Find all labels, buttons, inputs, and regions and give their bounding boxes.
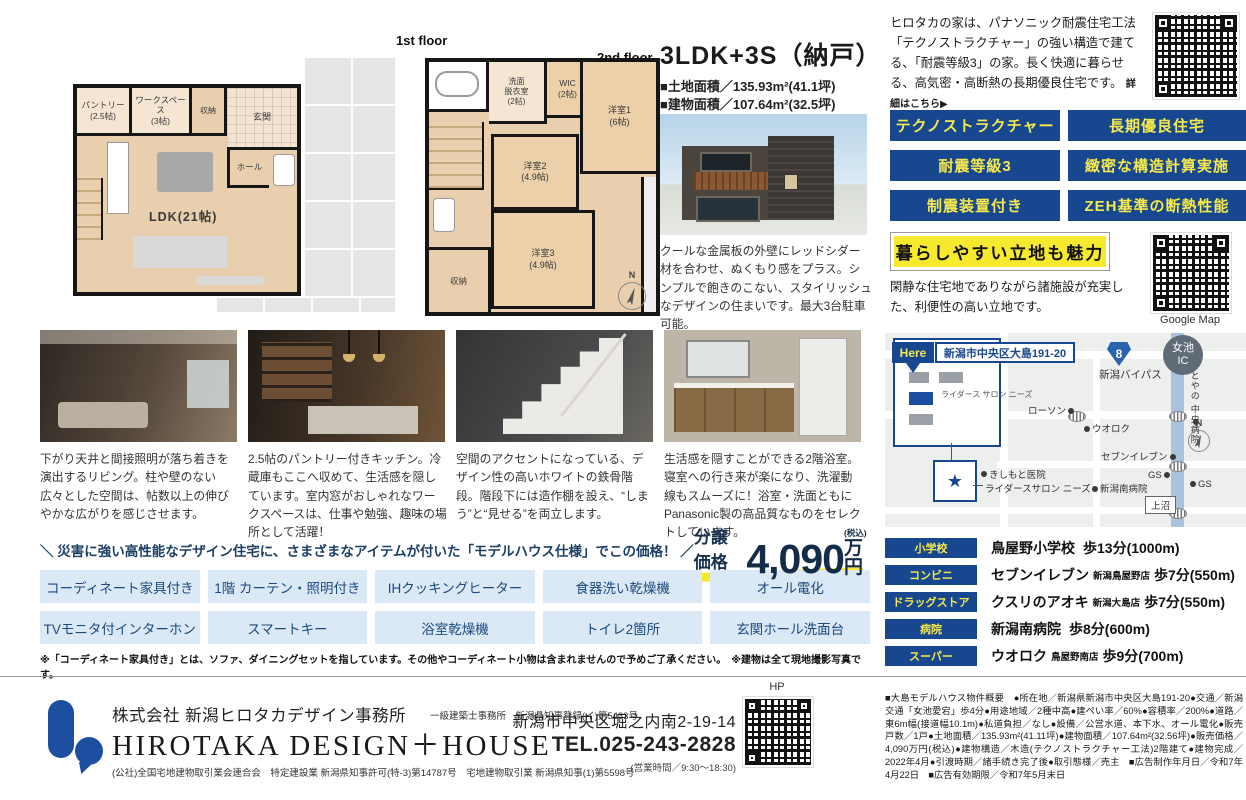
- item-furniture: コーディネート家具付き: [40, 570, 200, 603]
- seven-eleven-label: セブンイレブン: [1101, 449, 1178, 463]
- item-hall-vanity: 玄関ホール洗面台: [710, 611, 870, 644]
- floorplan-1f: パントリー (2.5帖) ワークスペース (3帖) 収納 玄関 ホール LDK(…: [65, 40, 395, 312]
- company-logo: [48, 700, 110, 778]
- clinic-label: きしもと医院: [989, 467, 1046, 481]
- dining-table: [157, 152, 213, 192]
- photo-staircase: [456, 330, 653, 442]
- room-ldk-label: LDK(21帖): [149, 206, 217, 225]
- bathtub: [435, 71, 479, 97]
- facility-walk: 歩7分(550m): [1144, 592, 1225, 612]
- item-ih-heater: IHクッキングヒーター: [375, 570, 535, 603]
- item-two-toilets: トイレ2箇所: [543, 611, 703, 644]
- room-bedroom1: 洋室1 (6帖): [580, 62, 656, 174]
- flyer-page: パントリー (2.5帖) ワークスペース (3帖) 収納 玄関 ホール LDK(…: [0, 0, 1246, 800]
- property-overview: ■大島モデルハウス物件概要 ●所在地／新潟県新潟市中央区大島191-20●交通／…: [885, 692, 1243, 782]
- photo-bathroom-vanity: [664, 330, 861, 442]
- here-chip: Here: [892, 342, 934, 363]
- inset-building: [939, 372, 963, 383]
- site-lot-grid: [303, 56, 395, 312]
- bypass-label: 新潟バイパス: [1099, 367, 1162, 382]
- room-pantry: パントリー (2.5帖): [77, 88, 132, 136]
- gs-label-1: GS: [1148, 470, 1172, 481]
- compass-icon: N: [618, 282, 646, 310]
- kaminuma-label: 上沼: [1145, 496, 1176, 514]
- facility-chip: 病院: [885, 619, 977, 639]
- room-bedroom2: 洋室2 (4.9帖): [491, 134, 579, 210]
- access-map: 8 新潟バイパス 女池 IC とやの 中央病院 ライダース サロン ニーズ He…: [885, 333, 1246, 527]
- facility-sub: 新潟鳥屋野店: [1093, 568, 1150, 582]
- contact-block: 新潟市中央区堀之内南2-19-14 TEL.025-243-2828 (営業時間…: [468, 708, 736, 774]
- inset-building-here: [909, 392, 933, 405]
- map-connector: [951, 443, 952, 460]
- facility-row-drugstore: ドラッグストア クスリのアオキ 新潟大島店 歩7分(550m): [885, 591, 1225, 612]
- map-address-chip: 新潟市中央区大島191-20: [935, 342, 1075, 363]
- exterior-photo: [660, 114, 867, 235]
- price-value: 4,090: [746, 542, 844, 577]
- sofa: [133, 236, 227, 268]
- qr-technostructure: [1152, 12, 1240, 100]
- land-area: ■土地面積／135.93m²(41.1坪): [660, 76, 835, 95]
- stairs-2f: [429, 122, 484, 190]
- room-washroom: 洗面 脱衣室 (2帖): [489, 62, 547, 124]
- facility-name: 鳥屋野小学校: [991, 538, 1075, 558]
- facility-name: ウオロク: [991, 646, 1047, 666]
- page-title: 3LDK+3S（納戸）: [660, 36, 881, 72]
- site-lot-grid: [215, 296, 395, 312]
- intro-text: ヒロタカの家は、パナソニック耐震住宅工法「テクノストラクチャー」の強い構造で建て…: [890, 14, 1142, 114]
- facility-row-hospital: 病院 新潟南病院 歩8分(600m): [885, 618, 1150, 639]
- house-outline-1f: パントリー (2.5帖) ワークスペース (3帖) 収納 玄関 ホール LDK(…: [73, 84, 301, 296]
- item-tv-interphone: TVモニタ付インターホン: [40, 611, 200, 644]
- hp-qr-label: HP: [742, 681, 812, 693]
- lawson-label: ローソン: [1028, 403, 1076, 417]
- room-workspace: ワークスペース (3帖): [132, 88, 192, 136]
- facility-row-school: 小学校 鳥屋野小学校 歩13分(1000m): [885, 537, 1180, 558]
- footer-divider: [0, 676, 1246, 677]
- badge-structural-calc: 緻密な構造計算実施: [1068, 150, 1246, 181]
- badge-zeh-insulation: ZEH基準の断熱性能: [1068, 190, 1246, 221]
- meike-ic-label: 女池 IC: [1163, 335, 1203, 375]
- facility-name: 新潟南病院: [991, 619, 1061, 639]
- facility-chip: コンビニ: [885, 565, 977, 585]
- inset-building-label: ライダース サロン ニーズ: [941, 390, 1032, 400]
- price-banner: ＼ 災害に強い高性能なデザイン住宅に、さまざまなアイテムが付いた「モデルハウス仕…: [40, 531, 870, 569]
- price-label: 分譲価格: [694, 523, 741, 573]
- map-connector: [973, 485, 983, 486]
- facility-name: セブンイレブン: [991, 565, 1089, 585]
- floorplan-2f: 洗面 脱衣室 (2帖) WIC (2帖) 洋室1 (6帖) 洋室2 (4.9帖)…: [425, 58, 660, 316]
- gs-label-2: GS: [1188, 479, 1212, 490]
- crosswalk-icon: [1169, 411, 1187, 422]
- uoroku-label: ウオロク: [1082, 421, 1130, 435]
- photo-living: [40, 330, 237, 442]
- location-banner: 暮らしやすい立地も魅力: [890, 232, 1110, 271]
- google-map-caption: Google Map: [1150, 314, 1230, 326]
- map-road: [885, 507, 1246, 514]
- qr-google-map: [1150, 232, 1232, 314]
- intro-body: ヒロタカの家は、パナソニック耐震住宅工法「テクノストラクチャー」の強い構造で建て…: [890, 16, 1136, 90]
- facility-chip: 小学校: [885, 538, 977, 558]
- map-compass-icon: N: [1188, 430, 1210, 452]
- facility-walk: 歩9分(700m): [1103, 646, 1184, 666]
- facility-walk: 歩7分(550m): [1154, 565, 1235, 585]
- office-phone: TEL.025-243-2828: [468, 733, 736, 757]
- item-bath-dryer: 浴室乾燥機: [375, 611, 535, 644]
- room-hall: ホール: [227, 150, 269, 188]
- facility-walk: 歩8分(600m): [1069, 619, 1150, 639]
- riders-salon-label: ライダースサロン ニーズ: [985, 481, 1091, 495]
- tv-board: [197, 276, 265, 285]
- room-storage-2f: 収納: [429, 247, 491, 312]
- facility-row-convenience: コンビニ セブンイレブン 新潟鳥屋野店 歩7分(550m): [885, 564, 1235, 585]
- badge-damping-device: 制震装置付き: [890, 190, 1060, 221]
- office-address: 新潟市中央区堀之内南2-19-14: [468, 708, 736, 732]
- kitchen-island: [107, 142, 129, 214]
- badge-technostructure: テクノストラクチャー: [890, 110, 1060, 141]
- badge-seismic-grade3: 耐震等級3: [890, 150, 1060, 181]
- photo-kitchen-pantry: [248, 330, 445, 442]
- room-bath: [429, 62, 489, 112]
- caption-living: 下がり天井と間接照明が落ち着きを演出するリビング。柱や壁のない広々とした空間は、…: [40, 450, 239, 523]
- badge-long-term-quality: 長期優良住宅: [1068, 110, 1246, 141]
- price-lead: ＼ 災害に強い高性能なデザイン住宅に、さまざまなアイテムが付いた「モデルハウス仕…: [40, 540, 694, 560]
- caption-kitchen: 2.5帖のパントリー付きキッチン。冷蔵庫もここへ収めて、生活感を隠しています。室…: [248, 450, 447, 541]
- location-desc: 閑静な住宅地でありながら諸施設が充実した、利便性の高い立地です。: [890, 278, 1142, 318]
- model-house-marker: ★: [933, 460, 977, 502]
- floor-label-1f: 1st floor: [396, 33, 447, 48]
- route8-shield-icon: 8: [1107, 342, 1131, 366]
- price-unit: 万円: [844, 539, 870, 577]
- feature-badges: テクノストラクチャー 長期優良住宅 耐震等級3 緻密な構造計算実施 制震装置付き…: [890, 110, 1246, 221]
- facility-walk: 歩13分(1000m): [1083, 538, 1180, 558]
- compass-n-label: N: [629, 270, 636, 280]
- room-entrance: 玄関: [227, 88, 297, 150]
- facility-sub: 鳥屋野南店: [1051, 649, 1099, 663]
- poi-dot: [981, 471, 987, 477]
- office-hours: (営業時間／9:30～18:30): [468, 760, 736, 774]
- facility-chip: ドラッグストア: [885, 592, 977, 612]
- price-group: 分譲価格 4,090 (税込) 万円: [694, 523, 870, 577]
- item-dishwasher: 食器洗い乾燥機: [543, 570, 703, 603]
- building-area: ■建物面積／107.64m²(32.5坪): [660, 94, 835, 113]
- room-storage-1f: 収納: [192, 88, 227, 136]
- toilet-1f: [273, 154, 295, 186]
- facility-name: クスリのアオキ: [991, 592, 1089, 612]
- facility-sub: 新潟大島店: [1093, 595, 1141, 609]
- facility-row-supermarket: スーパー ウオロク 鳥屋野南店 歩9分(700m): [885, 645, 1183, 666]
- map-compass-n: N: [1196, 418, 1203, 428]
- stairs-1f: [77, 178, 103, 240]
- house-outline-2f: 洗面 脱衣室 (2帖) WIC (2帖) 洋室1 (6帖) 洋室2 (4.9帖)…: [425, 58, 660, 316]
- item-curtain-lighting: 1階 カーテン・照明付き: [208, 570, 368, 603]
- inset-building: [909, 414, 933, 425]
- toilet-2f: [433, 198, 455, 232]
- floor-label-2f: 2nd floor: [597, 50, 653, 65]
- qr-homepage: [742, 696, 814, 768]
- facility-chip: スーパー: [885, 646, 977, 666]
- room-bedroom3: 洋室3 (4.9帖): [491, 210, 595, 309]
- item-smart-key: スマートキー: [208, 611, 368, 644]
- exterior-caption: クールな金属板の外壁にレッドシダー材を合わせ、ぬくもり感をプラス。シンプルで飽き…: [660, 242, 872, 333]
- south-hospital-label: 新潟南病院: [1090, 481, 1148, 495]
- caption-staircase: 空間のアクセントになっている、デザイン性の高いホワイトの鉄骨階段。階段下には造作…: [456, 450, 655, 523]
